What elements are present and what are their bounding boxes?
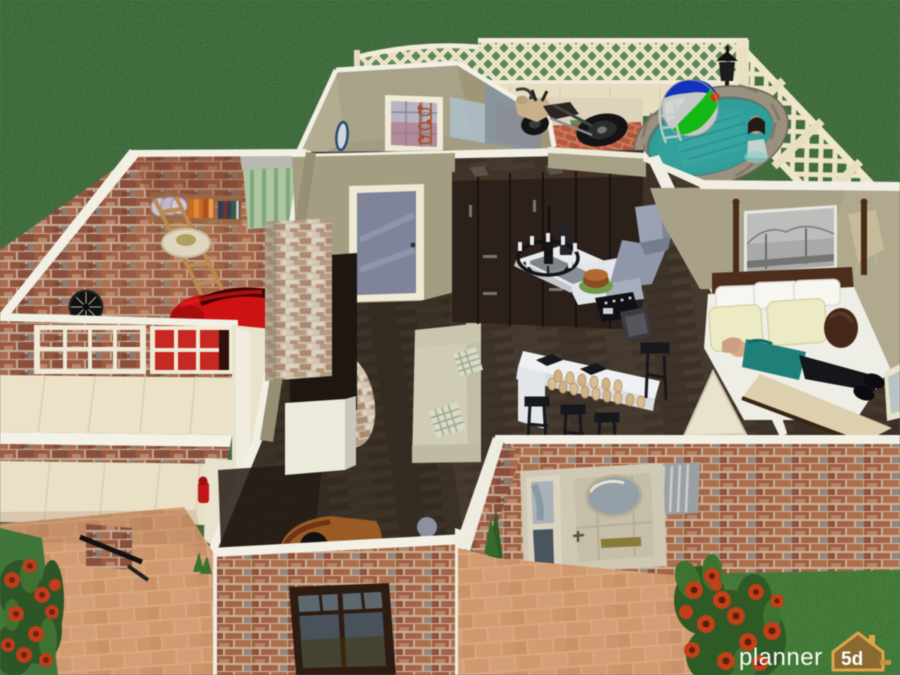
svg-text:5d: 5d [841,649,863,670]
svg-text:planner: planner [739,644,823,671]
